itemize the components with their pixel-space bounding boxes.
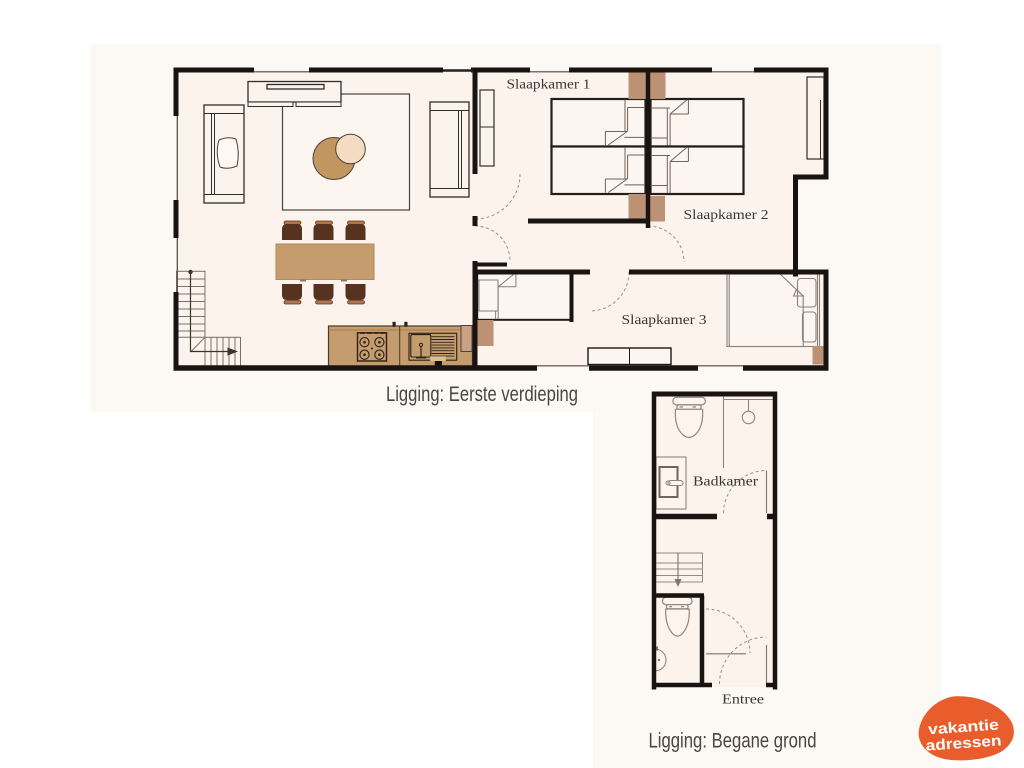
svg-text:Ligging: Eerste verdieping: Ligging: Eerste verdieping bbox=[386, 383, 578, 406]
svg-text:Badkamer: Badkamer bbox=[693, 475, 758, 490]
svg-text:Entree: Entree bbox=[722, 693, 764, 708]
svg-text:Slaapkamer 2: Slaapkamer 2 bbox=[684, 208, 769, 223]
svg-text:Slaapkamer 1: Slaapkamer 1 bbox=[507, 78, 591, 93]
svg-text:Ligging: Begane grond: Ligging: Begane grond bbox=[649, 730, 817, 753]
svg-text:Slaapkamer 3: Slaapkamer 3 bbox=[622, 313, 707, 328]
